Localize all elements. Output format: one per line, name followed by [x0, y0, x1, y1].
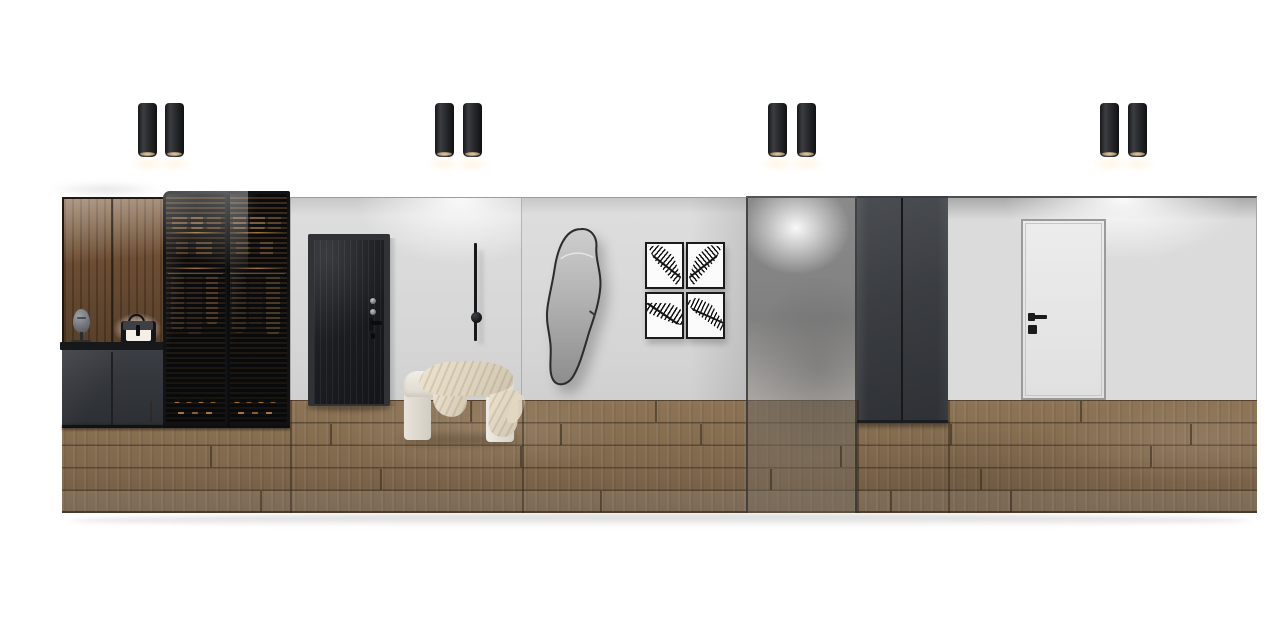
- floor-plank-seam: [770, 469, 772, 490]
- palm-leaf-art: [686, 293, 725, 339]
- ceiling-spotlight: [463, 103, 482, 157]
- floor-plank-seam: [700, 424, 702, 445]
- white-interior-door: [1021, 219, 1106, 400]
- spotlight-glow: [789, 157, 824, 171]
- mask-sculpture: [73, 309, 90, 333]
- spotlight-lens: [140, 152, 155, 156]
- entry-door-lock-cylinder: [370, 298, 376, 304]
- wall-joint-line: [521, 198, 522, 400]
- ceiling-spotlight: [797, 103, 816, 157]
- palm-leaf-art: [645, 292, 684, 338]
- ceiling-spotlight: [768, 103, 787, 157]
- entry-door-wall-shadow: [390, 238, 397, 406]
- floor-plank-seam: [260, 491, 262, 512]
- palm-print-frame: [686, 292, 725, 339]
- organic-wall-mirror: [541, 226, 613, 396]
- charcoal-double-panel: [857, 196, 948, 423]
- white-door-handle: [1034, 315, 1047, 319]
- ceiling-spotlight: [165, 103, 184, 157]
- floor-plank-seam: [1190, 424, 1192, 445]
- floor-section-line: [948, 400, 950, 513]
- ceiling-spotlight: [138, 103, 157, 157]
- floor-section-line: [522, 400, 524, 513]
- spotlight-lens: [1102, 152, 1117, 156]
- floor-plank-seam: [470, 401, 472, 422]
- floor-plank-seam: [890, 491, 892, 512]
- entry-door-handle-plate: [369, 318, 373, 331]
- handbag-clasp: [136, 325, 140, 336]
- entry-door-handle: [371, 321, 382, 325]
- floor-plank-seam: [150, 401, 152, 422]
- shoe-cabinet: [62, 350, 163, 428]
- wardrobe-light-reflection: [163, 191, 248, 321]
- palm-leaf-art: [689, 245, 722, 286]
- floor-plank-seam: [950, 424, 952, 445]
- soft-light-smudge: [46, 182, 164, 197]
- floor-drop-shadow: [70, 514, 1250, 527]
- floor-plank-seam: [600, 491, 602, 512]
- spotlight-glow: [1120, 157, 1155, 171]
- palm-print-frame: [645, 242, 684, 289]
- floor-section-line: [857, 400, 859, 513]
- spotlight-lens: [799, 152, 814, 156]
- ceiling-spotlight: [435, 103, 454, 157]
- palm-print-frame: [686, 242, 725, 289]
- floor-plank-seam: [380, 469, 382, 490]
- mask-sculpture-detail: [77, 317, 86, 319]
- mirror-glass: [547, 229, 601, 384]
- floor-section-line: [290, 400, 292, 513]
- floor-plank-seam: [655, 401, 657, 422]
- wall-sconce-rod: [474, 243, 477, 341]
- floor-plank-seam: [840, 446, 842, 467]
- wall-joint-line: [290, 198, 291, 400]
- ceiling-spotlight: [1128, 103, 1147, 157]
- interior-elevation-render: [0, 0, 1280, 624]
- sconce-shadow: [479, 250, 483, 344]
- entry-door-keyhole: [371, 333, 375, 339]
- spotlight-lens: [1130, 152, 1145, 156]
- spotlight-lens: [167, 152, 182, 156]
- floor-plank-seam: [980, 469, 982, 490]
- floor-plank-seam: [1150, 446, 1152, 467]
- palm-leaf-art: [648, 245, 681, 286]
- floor-plank-seam: [560, 424, 562, 445]
- floor-plank-seam: [330, 424, 332, 445]
- spotlight-lens: [437, 152, 452, 156]
- spotlight-lens: [770, 152, 785, 156]
- spotlight-glow: [455, 157, 490, 171]
- wall-sconce-sphere: [471, 312, 482, 323]
- wardrobe-floor-shadow: [62, 425, 290, 430]
- entry-door-lock-cylinder: [370, 309, 376, 315]
- ceiling-spotlight: [1100, 103, 1119, 157]
- floor-plank-seam: [1080, 401, 1082, 422]
- throw-blanket: [418, 359, 513, 397]
- spotlight-lens: [465, 152, 480, 156]
- palm-print-frame: [645, 292, 684, 339]
- white-door-keyplate: [1028, 325, 1037, 334]
- floor-plank-seam: [1010, 491, 1012, 512]
- floor-plank-seam: [210, 446, 212, 467]
- cabinet-countertop: [60, 342, 165, 350]
- spotlight-glow: [157, 157, 192, 171]
